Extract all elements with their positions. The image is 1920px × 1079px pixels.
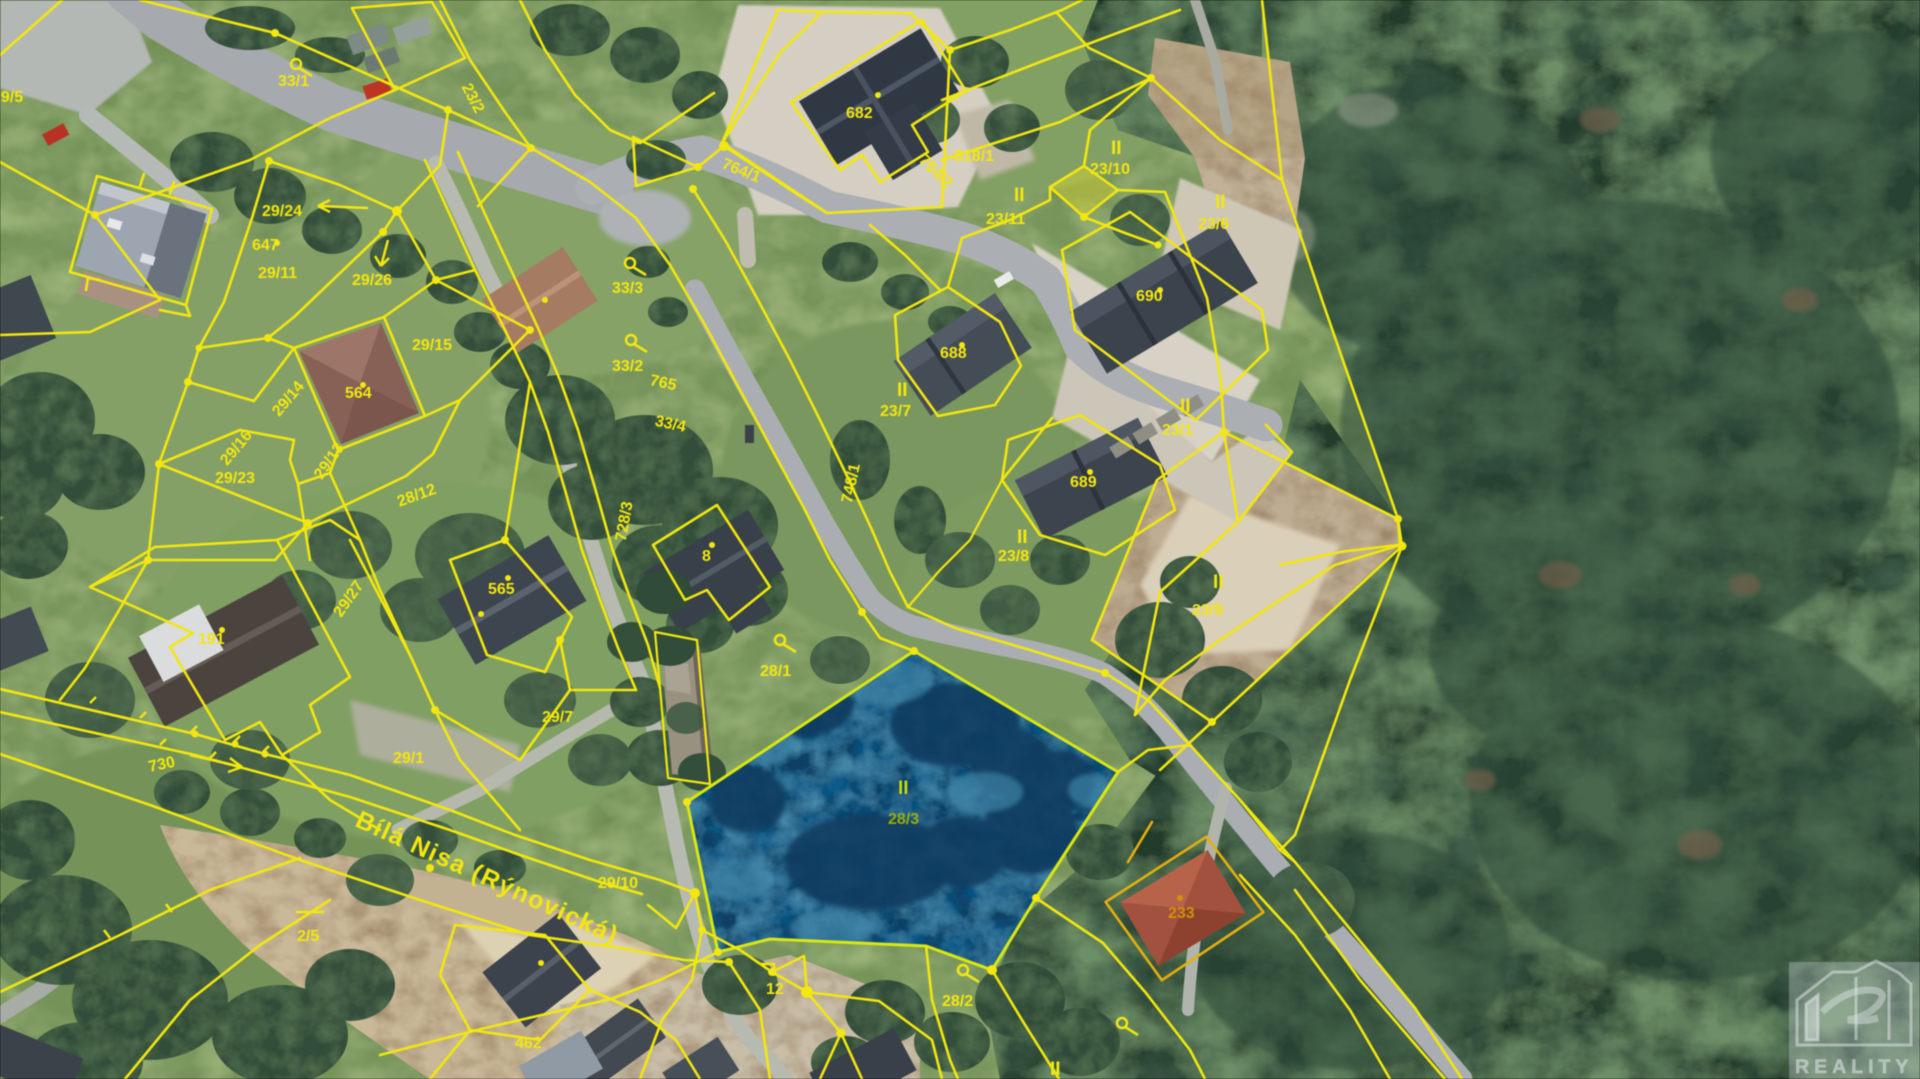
svg-text:689: 689 — [1070, 474, 1097, 491]
svg-text:29/1: 29/1 — [393, 750, 424, 767]
svg-text:II: II — [898, 778, 909, 799]
svg-text:29/15: 29/15 — [412, 337, 452, 354]
svg-text:8: 8 — [702, 548, 711, 565]
svg-text:647: 647 — [252, 237, 279, 254]
svg-text:29/5: 29/5 — [0, 89, 23, 106]
svg-text:II: II — [1017, 527, 1028, 548]
svg-text:565: 565 — [488, 581, 515, 598]
svg-text:29/23: 29/23 — [215, 470, 255, 487]
svg-text:462: 462 — [515, 1035, 542, 1052]
svg-text:II: II — [897, 380, 908, 401]
svg-text:23/10: 23/10 — [1090, 161, 1130, 178]
svg-text:682: 682 — [846, 105, 873, 122]
svg-text:23/8: 23/8 — [998, 548, 1029, 565]
svg-text:564: 564 — [345, 385, 372, 402]
svg-text:REALITY: REALITY — [1795, 1056, 1913, 1078]
svg-text:191: 191 — [198, 631, 225, 648]
svg-text:33/2: 33/2 — [612, 358, 643, 375]
svg-text:23/11: 23/11 — [986, 211, 1025, 228]
svg-text:23/6: 23/6 — [1198, 216, 1229, 233]
svg-text:29/7: 29/7 — [542, 709, 573, 726]
svg-text:II: II — [1111, 138, 1122, 159]
svg-text:II: II — [1215, 192, 1226, 213]
svg-text:233: 233 — [1168, 905, 1195, 922]
svg-text:II: II — [1180, 396, 1191, 417]
svg-text:29/11: 29/11 — [258, 265, 297, 282]
svg-text:29/26: 29/26 — [352, 272, 392, 289]
svg-text:23/7: 23/7 — [880, 403, 911, 420]
svg-text:29/10: 29/10 — [598, 875, 638, 892]
svg-text:33/1: 33/1 — [278, 73, 309, 90]
svg-text:II: II — [1213, 572, 1224, 593]
svg-text:33/3: 33/3 — [612, 280, 643, 297]
svg-text:28/3: 28/3 — [888, 811, 919, 828]
svg-text:23/9: 23/9 — [1192, 602, 1223, 619]
svg-text:II: II — [1050, 1059, 1061, 1079]
svg-text:28/1: 28/1 — [760, 663, 791, 680]
svg-text:818/1: 818/1 — [954, 148, 994, 165]
svg-text:12: 12 — [766, 981, 784, 998]
svg-text:2/5: 2/5 — [297, 928, 319, 945]
svg-text:28/2: 28/2 — [942, 993, 973, 1010]
svg-text:23/1: 23/1 — [1162, 422, 1193, 439]
svg-text:29/24: 29/24 — [262, 203, 302, 220]
svg-text:II: II — [1014, 185, 1025, 206]
